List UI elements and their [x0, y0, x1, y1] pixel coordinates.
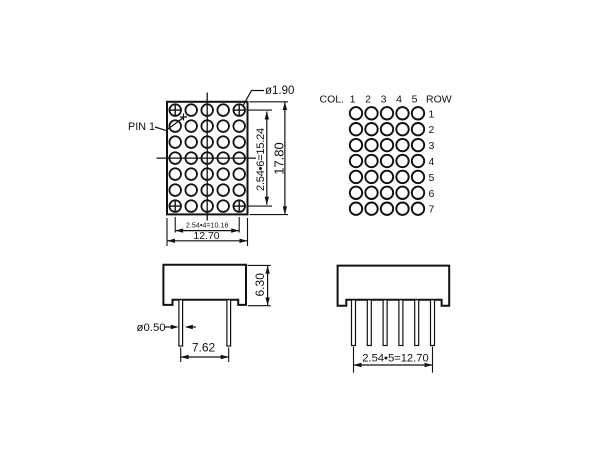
svg-text:ø1.90: ø1.90 [265, 85, 294, 97]
svg-text:6.30: 6.30 [253, 273, 267, 297]
svg-text:2.54•4=10.16: 2.54•4=10.16 [186, 220, 229, 229]
svg-text:PIN 1: PIN 1 [128, 121, 155, 133]
svg-text:3: 3 [381, 94, 387, 106]
svg-text:7: 7 [429, 204, 435, 216]
svg-text:2.54•6=15.24: 2.54•6=15.24 [255, 128, 267, 191]
svg-text:ø0.50: ø0.50 [137, 322, 166, 334]
svg-text:2: 2 [429, 124, 435, 136]
svg-text:4: 4 [429, 156, 435, 168]
svg-text:12.70: 12.70 [193, 230, 219, 242]
svg-text:5: 5 [429, 172, 435, 184]
svg-text:6: 6 [429, 188, 435, 200]
svg-text:4: 4 [396, 94, 402, 106]
svg-text:COL.: COL. [320, 94, 345, 106]
svg-text:1: 1 [429, 108, 435, 120]
svg-text:17.80: 17.80 [272, 142, 287, 175]
svg-text:3: 3 [429, 140, 435, 152]
svg-text:5: 5 [412, 94, 418, 106]
svg-text:ROW: ROW [426, 94, 452, 106]
svg-text:7.62: 7.62 [192, 341, 216, 355]
svg-text:1: 1 [350, 94, 356, 106]
svg-text:2.54•5=12.70: 2.54•5=12.70 [362, 352, 428, 364]
svg-text:2: 2 [365, 94, 371, 106]
